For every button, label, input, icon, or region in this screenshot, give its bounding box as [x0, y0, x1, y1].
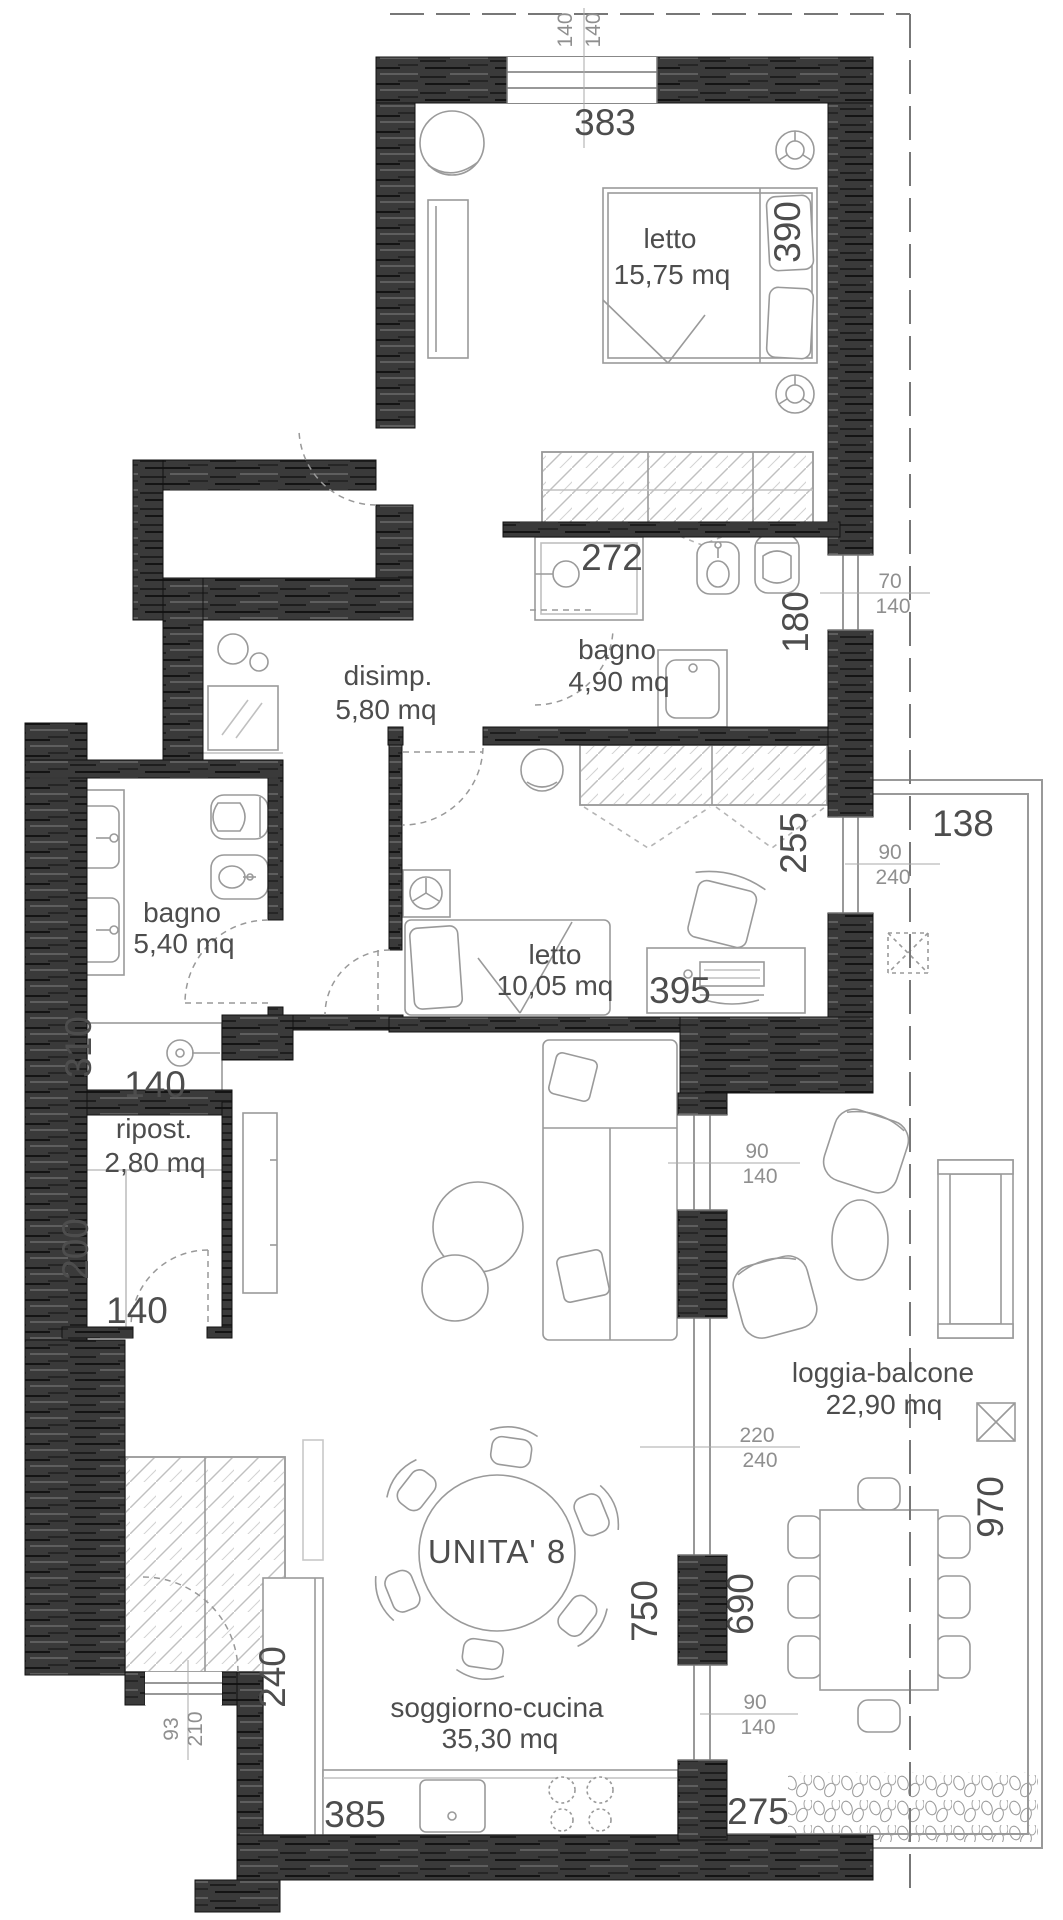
dim-390: 390 [767, 201, 808, 263]
ceiling-fan-icon [403, 870, 450, 917]
wall-letto2-bottom-thin [389, 1017, 680, 1032]
wall-loggia-pillar-3 [678, 1760, 727, 1840]
dim-180: 180 [775, 591, 816, 653]
wall-mid-vertical [163, 578, 203, 760]
window-living-lower-90x140 [678, 1665, 727, 1760]
loggia-bench [938, 1160, 1013, 1338]
wall-letto2-top [483, 727, 828, 745]
dim-383: 383 [574, 102, 636, 143]
opening-w: 140 [554, 12, 577, 47]
bedside-lamp-icon [776, 375, 814, 413]
room-name: letto [529, 939, 582, 970]
room-label-ripostiglio: ripost. 2,80 mq [104, 1113, 205, 1178]
room-area: 22,90 mq [826, 1389, 943, 1420]
room-label-loggia: loggia-balcone 22,90 mq [792, 1357, 974, 1420]
wall-loggia-step [678, 1093, 727, 1115]
hall-cabinet [243, 1113, 277, 1293]
opening-w: 93 [160, 1717, 183, 1740]
sofa [543, 1040, 677, 1340]
opening-h: 210 [184, 1711, 207, 1746]
opening-h: 140 [740, 1716, 775, 1739]
opening-dim-top-window: 140 140 [554, 12, 605, 47]
wall-bagno2-top [25, 760, 283, 778]
opening-h: 240 [875, 866, 910, 889]
wall-hall-left [133, 460, 163, 620]
loggia-armchair [818, 1103, 913, 1198]
dresser-bedroom1 [428, 200, 468, 358]
entry-wardrobe [125, 1457, 285, 1672]
desk-chair [680, 866, 767, 951]
laundry-sink-icon [218, 634, 268, 671]
opening-h: 240 [742, 1449, 777, 1472]
room-area: 10,05 mq [497, 970, 614, 1001]
wall-right-upper [828, 103, 873, 555]
opening-w: 220 [739, 1424, 774, 1447]
toilet-bagno1 [755, 535, 799, 593]
loggia-armchair [728, 1250, 821, 1342]
wall-bagno2-right [268, 778, 283, 920]
opening-w: 90 [745, 1140, 768, 1163]
opening-h: 140 [742, 1165, 777, 1188]
opening-dim-bath1-window: 70 140 [875, 570, 910, 618]
opening-dim-entry-door: 93 210 [160, 1711, 207, 1746]
wall-party-lower [25, 1340, 125, 1675]
bedside-lamp-icon [776, 131, 814, 169]
room-name: bagno [143, 897, 221, 928]
wall-right-mid [828, 630, 873, 817]
loggia-side-table [832, 1200, 888, 1280]
room-label-soggiorno: soggiorno-cucina 35,30 mq [390, 1692, 604, 1754]
room-label-bagno1: bagno 4,90 mq [568, 634, 669, 697]
wall-storage-bottom-right [207, 1327, 232, 1338]
room-area: 5,80 mq [335, 694, 436, 725]
room-area: 4,90 mq [568, 666, 669, 697]
wall-hall-bottom-block [222, 1015, 293, 1060]
opening-dim-living-lower: 90 140 [740, 1691, 775, 1739]
column-marker [888, 933, 928, 973]
loggia-dining-table [788, 1478, 970, 1732]
wall-loggia-pillar-1 [678, 1210, 727, 1318]
dim-310: 310 [58, 1016, 99, 1078]
stool-letto2 [521, 749, 563, 791]
wall-letto2-top-left [388, 727, 403, 745]
wall-living-top-thick [680, 1017, 873, 1093]
room-name: loggia-balcone [792, 1357, 974, 1388]
dim-275: 275 [727, 1791, 789, 1832]
dim-255: 255 [773, 812, 814, 874]
opening-h: 140 [582, 12, 605, 47]
room-label-bagno2: bagno 5,40 mq [133, 897, 234, 959]
wall-hall-top [133, 460, 376, 490]
wall-letto2-left [389, 745, 402, 950]
room-area: 5,40 mq [133, 928, 234, 959]
window-90x240 [828, 817, 873, 913]
room-area: 35,30 mq [442, 1723, 559, 1754]
dim-750: 750 [624, 1580, 665, 1642]
dim-140-shower: 140 [124, 1064, 186, 1105]
wall-bottom [237, 1835, 873, 1880]
column-marker [977, 1403, 1015, 1441]
door-arc-letto2 [403, 748, 483, 825]
dim-970: 970 [970, 1476, 1011, 1538]
room-area: 15,75 mq [614, 259, 731, 290]
room-name: soggiorno-cucina [390, 1692, 604, 1723]
unit-label: UNITA' 8 [428, 1533, 566, 1570]
wall-bedroom1-left [376, 103, 415, 428]
entry-door-threshold [145, 1672, 222, 1705]
wall-bottom-step [195, 1880, 280, 1912]
opening-h: 140 [875, 595, 910, 618]
dim-385: 385 [324, 1794, 386, 1835]
dim-690: 690 [720, 1573, 761, 1635]
bidet-bagno2 [211, 855, 268, 899]
room-name: letto [644, 223, 697, 254]
dim-272: 272 [581, 537, 643, 578]
opening-w: 90 [743, 1691, 766, 1714]
opening-dim-glass-door: 220 240 [739, 1424, 777, 1472]
floor-plan-page: letto 15,75 mq bagno 4,90 mq disimp. 5,8… [0, 0, 1063, 1920]
coffee-tables [422, 1182, 523, 1321]
opening-w: 70 [878, 570, 901, 593]
wall-bedroom1-bottom [503, 522, 840, 537]
opening-dim-living-upper: 90 140 [742, 1140, 777, 1188]
wall-storage-right [222, 1102, 232, 1338]
wall-right-lower [828, 913, 873, 1018]
room-label-disimpegno: disimp. 5,80 mq [335, 660, 436, 725]
dim-138: 138 [932, 803, 994, 844]
loggia-planter [788, 1772, 1038, 1842]
bidet-bagno1 [697, 542, 739, 594]
dim-200: 200 [55, 1218, 96, 1280]
floor-plan-drawing: letto 15,75 mq bagno 4,90 mq disimp. 5,8… [0, 0, 1063, 1920]
room-name: disimp. [344, 660, 433, 691]
door-arc-hall [325, 950, 390, 1015]
opening-w: 90 [878, 841, 901, 864]
dim-140-storage: 140 [106, 1290, 168, 1331]
washing-machine [208, 686, 278, 750]
dim-395: 395 [649, 970, 711, 1011]
toilet-bagno2 [211, 795, 268, 839]
sideboard [303, 1440, 323, 1560]
room-name: bagno [578, 634, 656, 665]
room-name: ripost. [116, 1113, 192, 1144]
glass-door-220x240 [678, 1318, 727, 1555]
armchair-bedroom1 [420, 111, 484, 175]
dim-240: 240 [252, 1646, 293, 1708]
window-top-140x140 [507, 57, 657, 103]
wall-entry-left-jamb [125, 1672, 145, 1705]
room-area: 2,80 mq [104, 1147, 205, 1178]
opening-dim-bed2-window: 90 240 [875, 841, 910, 889]
